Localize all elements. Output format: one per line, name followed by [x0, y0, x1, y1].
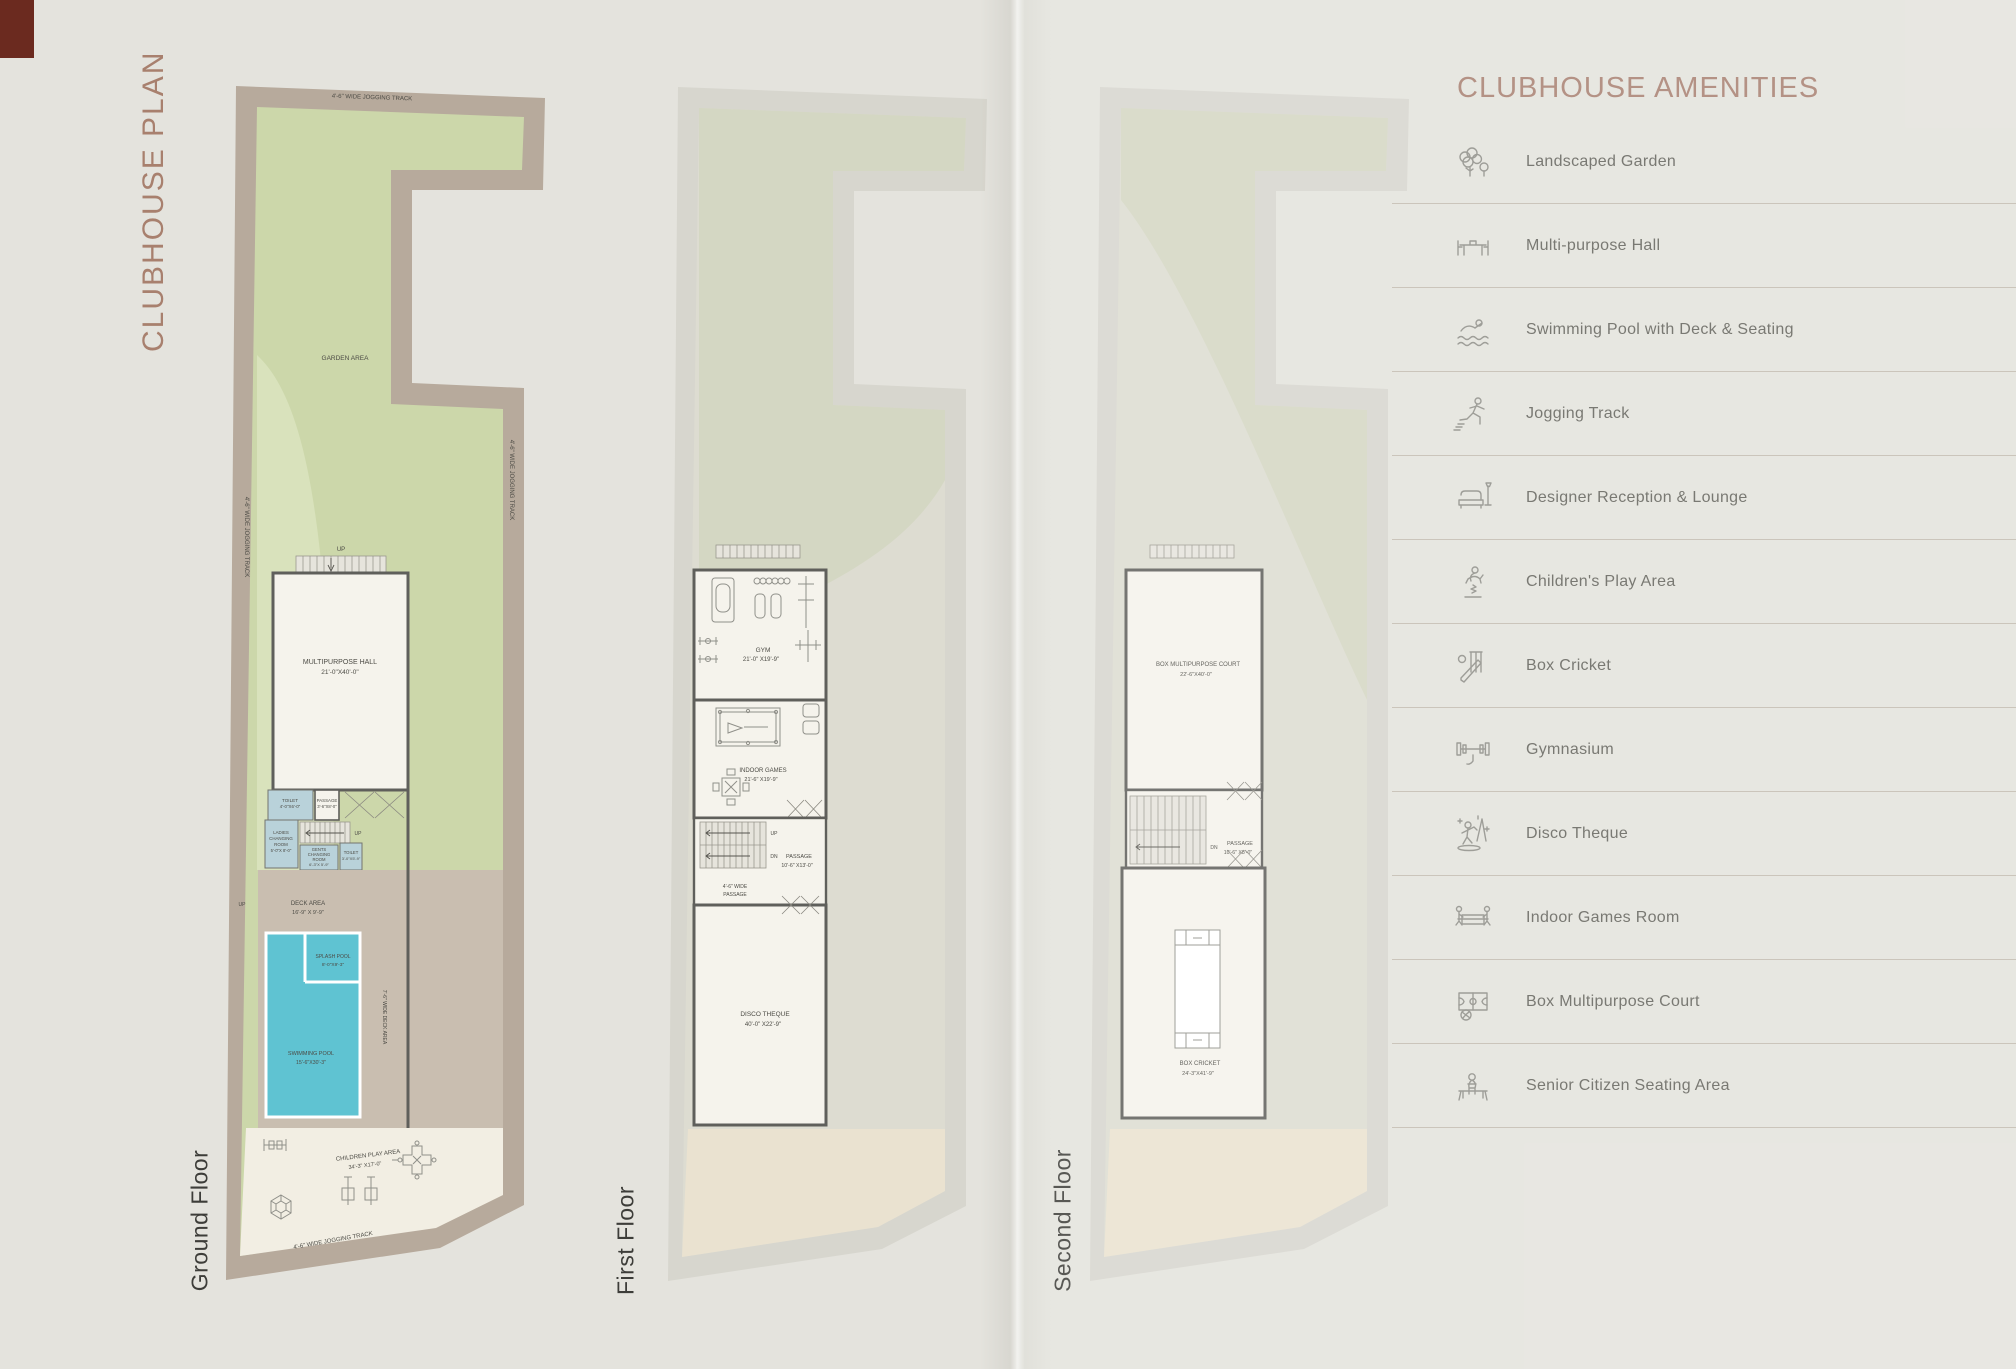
- ground-entry-stairs: [296, 556, 386, 573]
- ground-toilet1-name: TOILET: [282, 798, 298, 803]
- first-indoor-games: [694, 700, 826, 818]
- second-cricket-dim: 24'-3"X41'-9": [1182, 1071, 1214, 1077]
- amenity-row: Senior Citizen Seating Area: [1392, 1044, 2016, 1128]
- ground-hall-name: MULTIPURPOSE HALL: [303, 659, 377, 666]
- ground-swimming-pool: [266, 933, 360, 1117]
- amenity-label: Gymnasium: [1526, 741, 1614, 759]
- second-floor-label: Second Floor: [1050, 1141, 1077, 1301]
- first-wide-l1: 4'-6" WIDE: [723, 884, 748, 890]
- ground-track-label-left: 4'-6" WIDE JOGGING TRACK: [243, 497, 249, 578]
- amenity-label: Designer Reception & Lounge: [1526, 489, 1748, 507]
- first-disco-name: DISCO THEQUE: [740, 1011, 790, 1018]
- second-court-dim: 22'-6"X40'-0": [1180, 672, 1212, 678]
- first-disco-dim: 40'-0" X22'-9": [745, 1022, 781, 1028]
- ground-deck-up: UP: [239, 902, 247, 908]
- reception-lounge-icon: [1450, 475, 1496, 521]
- amenities-panel: CLUBHOUSE AMENITIES Landscaped Garden Mu…: [1392, 0, 2016, 1369]
- indoor-games-icon: [1450, 895, 1496, 941]
- second-cricket-name: BOX CRICKET: [1180, 1061, 1221, 1067]
- ground-swim-name: SWIMMING POOL: [288, 1051, 334, 1057]
- amenity-label: Box Cricket: [1526, 657, 1611, 675]
- amenity-label: Children's Play Area: [1526, 573, 1676, 591]
- second-passage-name: PASSAGE: [1227, 841, 1253, 847]
- page-title: CLUBHOUSE PLAN: [137, 52, 171, 352]
- box-court-icon: [1450, 979, 1496, 1025]
- first-games-dim: 21'-6" X19'-9": [744, 777, 777, 783]
- first-dn-label: DN: [770, 854, 778, 860]
- first-gym-name: GYM: [756, 647, 771, 654]
- senior-seating-icon: [1450, 1063, 1496, 1109]
- ground-ladies-l3: ROOM: [274, 842, 288, 847]
- second-court-name: BOX MULTIPURPOSE COURT: [1156, 662, 1240, 668]
- amenity-row: Jogging Track: [1392, 372, 2016, 456]
- second-box-multipurpose-court: [1126, 570, 1262, 790]
- jogging-track-icon: [1450, 391, 1496, 437]
- ground-passage-name: PASSAGE: [317, 798, 338, 803]
- first-games-name: INDOOR GAMES: [739, 768, 786, 774]
- disco-theque-icon: [1450, 811, 1496, 857]
- amenity-row: Box Cricket: [1392, 624, 2016, 708]
- gymnasium-icon: [1450, 727, 1496, 773]
- first-passage-name: PASSAGE: [786, 854, 812, 860]
- first-floor-label: First Floor: [613, 1176, 640, 1306]
- first-passage-dim: 10'-6" X13'-0": [781, 863, 812, 869]
- amenity-row: Box Multipurpose Court: [1392, 960, 2016, 1044]
- ground-splash-dim: 8'-0"X9'-3": [322, 962, 345, 968]
- amenities-title: CLUBHOUSE AMENITIES: [1457, 72, 1819, 105]
- amenity-label: Landscaped Garden: [1526, 153, 1676, 171]
- amenity-row: Indoor Games Room: [1392, 876, 2016, 960]
- second-floor-plan: BOX MULTIPURPOSE COURT 22'-6"X40'-0" DN …: [1060, 80, 1420, 1300]
- multipurpose-hall-icon: [1450, 223, 1496, 269]
- box-cricket-icon: [1450, 643, 1496, 689]
- ground-ladies-l2: CHANGING: [269, 836, 293, 841]
- swimming-pool-icon: [1450, 307, 1496, 353]
- ground-floor-plan: 4'-6" WIDE JOGGING TRACK 4'-6" WIDE JOGG…: [200, 70, 560, 1300]
- amenity-row: Children's Play Area: [1392, 540, 2016, 624]
- ground-ladies-l4: 5'-0"X 8'-0": [271, 848, 292, 853]
- children-play-icon: [1450, 559, 1496, 605]
- ground-swim-dim: 15'-6"X30'-3": [296, 1060, 326, 1066]
- ground-floor-label: Ground Floor: [187, 1141, 214, 1301]
- amenity-label: Multi-purpose Hall: [1526, 237, 1660, 255]
- amenity-label: Disco Theque: [1526, 825, 1628, 843]
- ground-deck-side-label: 7'-6" WIDE DECK AREA: [381, 990, 387, 1045]
- ground-multipurpose-hall: [273, 573, 408, 790]
- ground-toilet2-name: TOILET: [344, 850, 359, 855]
- brochure-page: CLUBHOUSE PLAN 4'-6" WIDE JOGGING TRACK …: [0, 0, 2016, 1369]
- amenity-row: Landscaped Garden: [1392, 120, 2016, 204]
- ground-track-label-right: 4'-6" WIDE JOGGING TRACK: [508, 440, 514, 521]
- ground-mid-up: UP: [355, 831, 363, 837]
- ground-splash-name: SPLASH POOL: [315, 954, 350, 960]
- cricket-pitch: [1175, 930, 1220, 1048]
- ground-gents-l4: 6'-3"X 5'-9": [309, 862, 329, 867]
- amenity-label: Swimming Pool with Deck & Seating: [1526, 321, 1794, 339]
- ground-deck-name: DECK AREA: [291, 901, 325, 907]
- amenity-row: Designer Reception & Lounge: [1392, 456, 2016, 540]
- ground-ladies-l1: LADIES: [273, 830, 289, 835]
- ground-toilet1-dim: 4'-0"X6'-0": [280, 804, 301, 809]
- amenity-row: Gymnasium: [1392, 708, 2016, 792]
- ground-hall-dim: 21'-0"X40'-0": [321, 669, 359, 676]
- amenities-list: Landscaped Garden Multi-purpose Hall Swi…: [1392, 120, 2016, 1128]
- first-wide-l2: PASSAGE: [723, 892, 747, 898]
- amenity-label: Box Multipurpose Court: [1526, 993, 1700, 1011]
- amenity-label: Indoor Games Room: [1526, 909, 1680, 927]
- landscaped-garden-icon: [1450, 139, 1496, 185]
- amenity-label: Senior Citizen Seating Area: [1526, 1077, 1730, 1095]
- first-gym-dim: 21'-0" X19'-9": [743, 657, 779, 663]
- ground-passage-dim: 3'-6"X8'-0": [317, 804, 337, 809]
- second-dn-label: DN: [1210, 845, 1218, 851]
- ground-toilet2-dim: 3'-0"X5'-9": [342, 856, 361, 861]
- ground-deck-dim: 16'-9" X 9'-9": [292, 910, 324, 916]
- page-corner-mark: [0, 0, 34, 58]
- first-floor-plan: GYM 21'-0" X19'-9" INDOOR GAMES 21'-6" X…: [640, 80, 1000, 1300]
- ground-garden-label: GARDEN AREA: [322, 355, 370, 362]
- amenity-row: Multi-purpose Hall: [1392, 204, 2016, 288]
- first-up-label: UP: [771, 831, 779, 837]
- amenity-row: Swimming Pool with Deck & Seating: [1392, 288, 2016, 372]
- amenity-row: Disco Theque: [1392, 792, 2016, 876]
- ground-up-label: UP: [337, 547, 345, 553]
- amenity-label: Jogging Track: [1526, 405, 1630, 423]
